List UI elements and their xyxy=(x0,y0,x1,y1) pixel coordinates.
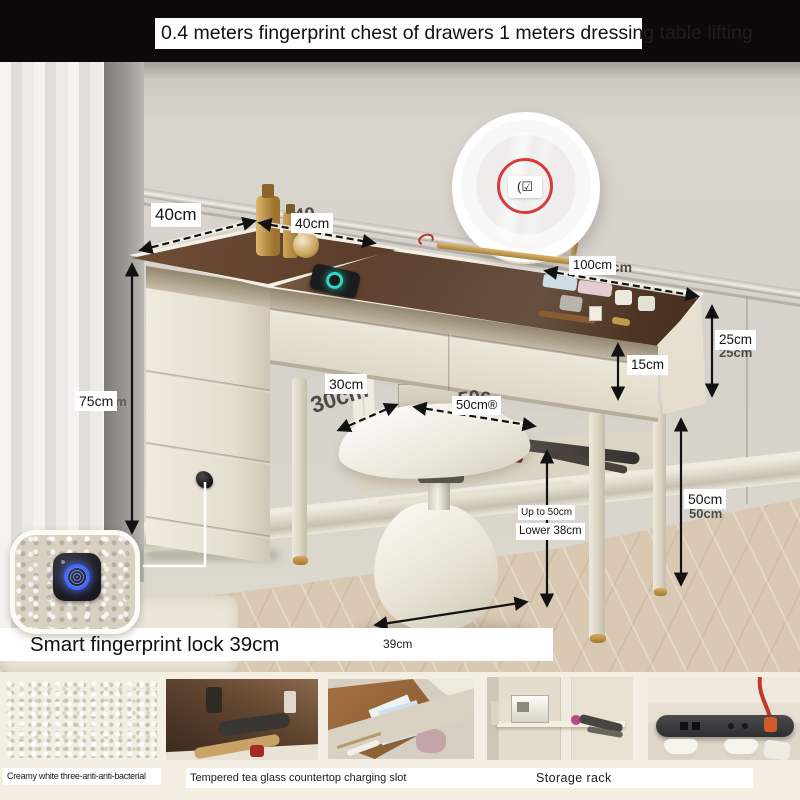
caption-leather: Creamy white three-anti-anti-bacterial xyxy=(3,768,161,785)
table-leg xyxy=(589,412,605,640)
grooming-tool xyxy=(217,712,290,737)
caption-glass: Tempered tea glass countertop charging s… xyxy=(190,768,406,788)
product-image: 0.4 meters fingerprint chest of drawers … xyxy=(0,0,800,800)
thumbnail-glass-countertop xyxy=(166,679,318,760)
drawer-seam xyxy=(146,516,270,539)
gold-leg-cap xyxy=(654,588,667,596)
rack-divider xyxy=(561,677,571,760)
caption-band: Tempered tea glass countertop charging s… xyxy=(186,768,753,788)
mini-safe xyxy=(511,695,549,723)
room-scene: (☑ xyxy=(0,62,800,672)
fingerprint-lock xyxy=(53,553,101,601)
lock-inset xyxy=(10,530,140,634)
thumbnail-storage-rack xyxy=(487,677,633,760)
checkbox-icon: (☑ xyxy=(508,176,542,198)
feature-thumbnails: Creamy white three-anti-anti-bacterial T… xyxy=(0,672,800,800)
dimension-label-39cm: 39cm xyxy=(383,637,412,651)
usb-port-icon xyxy=(728,723,734,729)
thumbnail-leather-texture xyxy=(6,680,157,758)
cosmetic-box xyxy=(559,295,583,313)
dimension-label-up-to-50cm: Up to 50cm xyxy=(518,505,575,520)
dimension-label-lower-38cm: Lower 38cm xyxy=(516,523,585,540)
cosmetic-cube xyxy=(589,306,602,321)
table-leg xyxy=(653,402,666,592)
thumbnail-drawer-interior xyxy=(328,679,474,759)
power-strip xyxy=(656,715,794,737)
title-bar: 0.4 meters fingerprint chest of drawers … xyxy=(0,0,800,62)
bottle xyxy=(206,687,222,713)
safe-keypad xyxy=(517,702,529,712)
drawer-seam xyxy=(146,442,270,465)
books xyxy=(501,699,509,723)
page-title-overflow: 0.4 meters fingerprint chest of drawers … xyxy=(642,18,753,49)
fingerprint-lock-knob xyxy=(196,470,213,490)
title-overflow: 0.4 meters fingerprint chest of drawers … xyxy=(642,18,800,49)
caption-storage-rack: Storage rack xyxy=(536,768,612,788)
plug-connector xyxy=(764,717,777,732)
thumbnail-power-strip xyxy=(648,677,800,760)
dimension-label-100cm: 100cm xyxy=(569,256,616,275)
dimension-label-40cm-left: 40cm xyxy=(151,203,201,227)
cosmetic-jar xyxy=(638,296,655,311)
table-leg xyxy=(292,378,307,560)
dimension-label-75cm: 75cm xyxy=(75,391,117,411)
perfume-bottle xyxy=(256,196,280,256)
page-title: 0.4 meters fingerprint chest of drawers … xyxy=(161,18,642,49)
dimension-label-15cm: 15cm xyxy=(627,355,668,375)
dimension-label-50cm-seat: 50cm® xyxy=(452,396,501,415)
cable-hook xyxy=(763,739,791,760)
lock-led-dot xyxy=(61,560,65,564)
gold-leg-cap xyxy=(293,556,308,565)
dimension-label-40cm-mid: 40cm xyxy=(291,213,333,233)
drawer-seam xyxy=(448,335,451,391)
dimension-label-50cm-leg: 50cm xyxy=(684,489,726,509)
charging-glow-icon xyxy=(324,270,344,290)
perfume-sphere xyxy=(293,232,319,258)
gold-leg-cap xyxy=(590,634,606,643)
bottle xyxy=(284,691,296,713)
curtain-shadow xyxy=(104,62,144,582)
nail-polish xyxy=(250,745,264,757)
cable-hook xyxy=(664,739,698,759)
cosmetic-jar xyxy=(615,290,632,305)
perfume-cap xyxy=(262,184,274,198)
socket-icon xyxy=(680,722,688,730)
fingerprint-icon xyxy=(64,564,90,590)
cable-hook xyxy=(724,739,758,759)
dimension-label-30cm: 30cm xyxy=(325,374,367,394)
dimension-label-25cm: 25cm xyxy=(715,330,756,350)
drawer-seam xyxy=(146,370,270,393)
chest-of-drawers xyxy=(146,266,270,564)
title-white-box: 0.4 meters fingerprint chest of drawers … xyxy=(155,18,642,49)
